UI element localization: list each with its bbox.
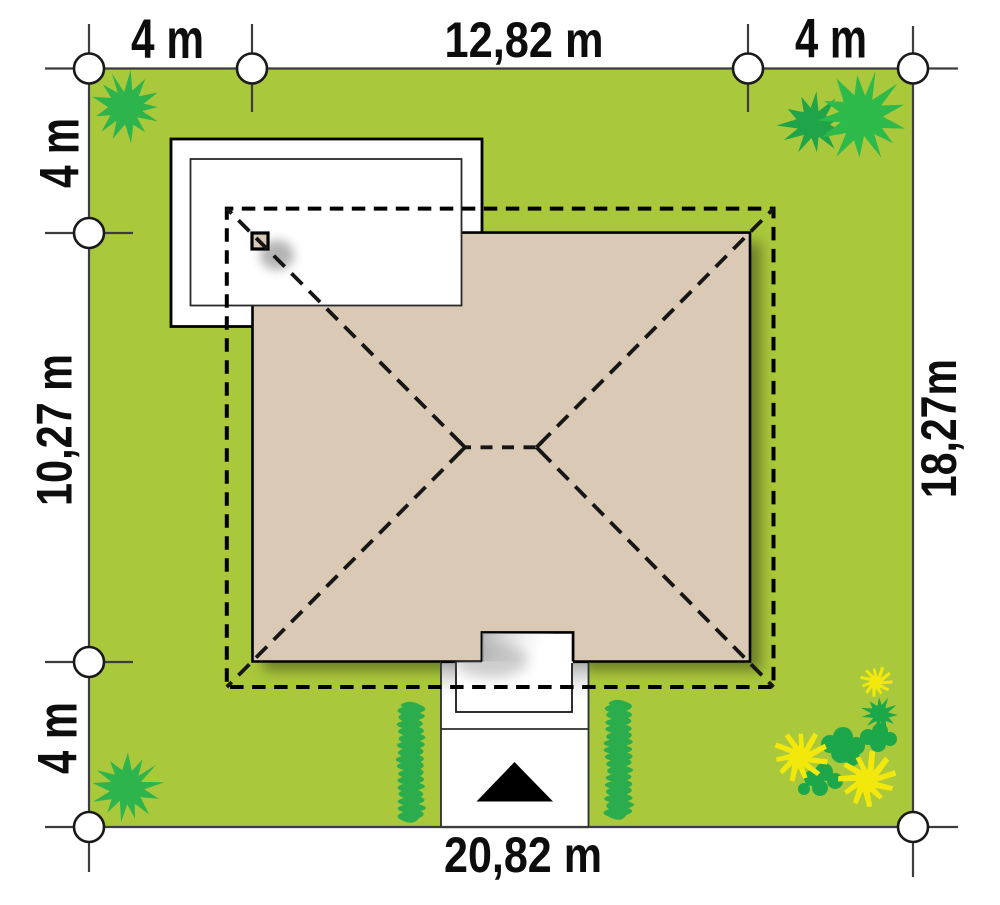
svg-text:4 m: 4 m [28,118,91,188]
svg-text:4 m: 4 m [131,7,204,70]
svg-text:18,27m: 18,27m [911,359,967,498]
svg-text:4 m: 4 m [26,702,89,774]
svg-text:20,82 m: 20,82 m [444,827,602,883]
svg-text:4 m: 4 m [795,7,867,70]
svg-text:10,27 m: 10,27 m [27,354,83,506]
svg-text:12,82 m: 12,82 m [445,12,604,68]
